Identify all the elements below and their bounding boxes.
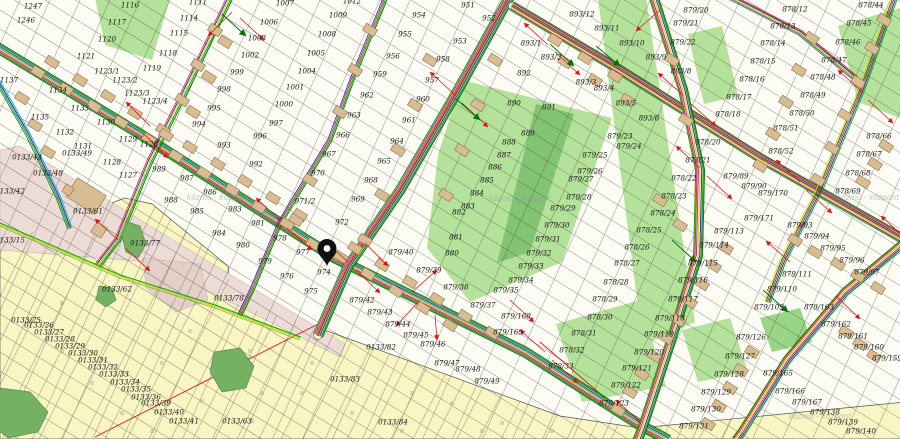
parcel-label: 879/34 (508, 276, 534, 285)
parcel-label: 879/122 (611, 381, 641, 390)
parcel-label: 0133/42 (0, 187, 25, 196)
parcel-label: 966 (336, 131, 350, 140)
parcel-label: 879/130 (691, 405, 721, 414)
parcel-label: 993 (217, 141, 231, 150)
parcel-label: 1012 (343, 0, 362, 6)
parcel-label: 956 (386, 52, 400, 61)
parcel-label: 878/66 (866, 132, 892, 141)
parcel-label: 960 (416, 95, 430, 104)
parcel-label: 879/46 (420, 340, 446, 349)
parcel-label: 878/52 (768, 147, 794, 156)
parcel-label: 0133/82 (366, 343, 396, 352)
parcel-label: 1123/1 (94, 67, 119, 76)
parcel-label: 879/160 (854, 343, 884, 352)
parcel-label: 878/14 (760, 39, 786, 48)
parcel-label: 879/40 (388, 248, 414, 257)
parcel-label: 0133/41 (169, 417, 199, 426)
parcel-label: 0133/62 (102, 285, 132, 294)
parcel-label: 1004 (298, 67, 317, 76)
parcel-label: 879/163 (804, 303, 834, 312)
parcel-label: 989 (152, 165, 166, 174)
parcel-label: 879/28 (566, 193, 592, 202)
parcel-label: 1135 (31, 113, 50, 122)
parcel-label: 983 (228, 205, 242, 214)
parcel-label: 879/94 (804, 232, 830, 241)
parcel-label: 879/131 (679, 422, 709, 431)
parcel-label: 878/46 (835, 38, 861, 47)
parcel-label: 1005 (307, 49, 326, 58)
parcel-label: 961 (402, 116, 416, 125)
parcel-label: 879/49 (474, 377, 500, 386)
parcel-label: 888 (502, 138, 516, 147)
parcel-label: 878/26 (624, 243, 650, 252)
parcel-label: 879/161 (838, 332, 868, 341)
parcel-label: 879/129 (701, 388, 731, 397)
parcel-label: 1114 (180, 14, 199, 23)
parcel-label: 879/140 (846, 427, 876, 436)
parcel-label: 879/118 (655, 314, 685, 323)
parcel-label: 1246 (17, 16, 36, 25)
parcel-label: 882 (452, 208, 466, 217)
parcel-label: 0133/63 (222, 417, 252, 426)
parcel-label: 974 (317, 268, 331, 277)
parcel-label: 878/21 (685, 156, 710, 165)
parcel-label: 1002 (241, 51, 260, 60)
parcel-label: 0133/61 (73, 207, 103, 216)
parcel-label: 879/35 (493, 286, 519, 295)
parcel-label: 879/24 (616, 142, 642, 151)
parcel-label: 996 (253, 132, 267, 141)
parcel-label: 1115 (170, 29, 189, 38)
parcel-label: 893/11 (594, 24, 619, 33)
parcel-label: 1134 (49, 86, 68, 95)
parcel-label: 879/170 (758, 189, 788, 198)
parcel-label: 879/30 (544, 221, 570, 230)
parcel-label: 1006 (260, 18, 279, 27)
parcel-label: 0133/39 (141, 399, 171, 408)
parcel-label: 879/93 (787, 221, 813, 230)
parcel-label: 878/24 (650, 209, 676, 218)
parcel-label: 1000 (275, 100, 294, 109)
parcel-label: 959 (373, 70, 387, 79)
parcel-label: 878/27 (614, 259, 640, 268)
parcel-label: 878/51 (773, 124, 798, 133)
parcel-label: 878/33 (548, 362, 574, 371)
parcel-label: 893/9 (646, 53, 667, 62)
parcel-label: 893/4 (594, 84, 615, 93)
parcel-label: 1121 (77, 52, 95, 61)
parcel-label: 879/43 (367, 308, 393, 317)
parcel-label: 879/109 (754, 303, 784, 312)
parcel-label: 879/123 (599, 399, 629, 408)
parcel-label: 0133/77 (130, 239, 160, 248)
parcel-label: 878/45 (846, 19, 872, 28)
watermark-text: közmű - központ (789, 412, 852, 421)
parcel-label: 879/96 (839, 256, 865, 265)
parcel-label: 878/31 (571, 329, 596, 338)
map-svg-host: 1247124611161117112011211111111411151118… (0, 0, 900, 439)
parcel-label: 972 (335, 218, 349, 227)
parcel-label: 879/31 (535, 235, 560, 244)
parcel-label: 1127 (119, 171, 138, 180)
parcel-label: 1111 (189, 0, 207, 7)
parcel-label: 878/50 (789, 109, 815, 118)
parcel-label: 879/39 (416, 266, 442, 275)
parcel-label: 879/168 (501, 312, 531, 321)
parcel-label: 1119 (143, 64, 162, 73)
parcel-label: 958 (436, 55, 450, 64)
parcel-label: 951 (461, 1, 475, 10)
parcel-label: 879/23 (607, 132, 633, 141)
parcel-label: 879/38 (443, 283, 469, 292)
parcel-label: 879/116 (678, 276, 708, 285)
parcel-label: 0133/49 (62, 149, 92, 158)
parcel-label: 879/159 (872, 354, 900, 363)
parcel-label: 1247 (24, 2, 43, 11)
parcel-label: 879/119 (644, 330, 674, 339)
parcel-label: 1118 (159, 49, 178, 58)
cadastral-map[interactable]: 1247124611161117112011211111111411151118… (0, 0, 900, 439)
parcel-label: 878/29 (592, 295, 618, 304)
parcel-label: 1129 (119, 135, 138, 144)
parcel-label: 878/28 (603, 278, 629, 287)
parcel-label: 1116 (121, 1, 140, 10)
parcel-label: 879/21 (673, 19, 698, 28)
parcel-label: 1008 (318, 30, 337, 39)
parcel-label: 879/167 (792, 398, 822, 407)
parcel-label: 0133/84 (378, 418, 408, 427)
parcel-label: 885 (480, 176, 494, 185)
parcel-label: 963 (347, 111, 361, 120)
parcel-label: 970 (311, 169, 325, 178)
parcel-label: 878/44 (858, 1, 884, 10)
parcel-label: 891 (542, 103, 556, 112)
parcel-label: 981 (251, 219, 265, 228)
parcel-label: 879/121 (622, 364, 652, 373)
parcel-label: 1120 (98, 35, 117, 44)
parcel-label: 1126 (140, 140, 159, 149)
parcel-label: 988 (164, 196, 178, 205)
parcel-label: 1133 (71, 104, 90, 113)
parcel-label: 995 (207, 104, 221, 113)
parcel-label: 0133/48 (33, 169, 63, 178)
parcel-label: 879/20 (683, 6, 709, 15)
parcel-label: 952 (482, 14, 496, 23)
parcel-label: 999 (230, 68, 244, 77)
parcel-label: 892 (517, 69, 531, 78)
parcel-label: 878/25 (636, 226, 662, 235)
parcel-label: 979 (258, 257, 272, 266)
map-canvas[interactable]: 1247124611161117112011211111111411151118… (0, 0, 900, 439)
parcel-label: 878/30 (587, 313, 613, 322)
parcel-label: 1132 (56, 128, 75, 137)
parcel-label: 879/110 (767, 285, 797, 294)
watermark-text: közmű - központ (489, 194, 552, 203)
parcel-label: 968 (364, 176, 378, 185)
parcel-label: 879/115 (688, 259, 718, 268)
parcel-label: 976 (280, 272, 294, 281)
watermark-text: közmű - központ (187, 193, 250, 202)
parcel-label: 887 (497, 151, 511, 160)
parcel-label: 879/44 (385, 320, 411, 329)
parcel-label: 893/10 (619, 39, 645, 48)
parcel-label: 969 (351, 195, 365, 204)
parcel-label: 879/120 (634, 348, 664, 357)
parcel-label: 889 (521, 129, 535, 138)
parcel-label: 987 (180, 174, 194, 183)
parcel-label: 890 (507, 99, 521, 108)
parcel-label: 881 (449, 233, 463, 242)
parcel-label: 0133/40 (154, 408, 184, 417)
parcel-label: 992 (249, 160, 263, 169)
parcel-label: 884 (470, 189, 484, 198)
parcel-label: 998 (217, 85, 231, 94)
parcel-label: 0133/83 (330, 375, 360, 384)
parcel-label: 879/27 (568, 175, 594, 184)
parcel-label: 878/49 (800, 91, 826, 100)
parcel-label: 879/166 (775, 387, 805, 396)
parcel-label: 879/117 (668, 295, 698, 304)
parcel-label: 1007 (276, 0, 295, 8)
parcel-label: 1123/4 (142, 97, 168, 106)
parcel-label: 1001 (286, 83, 304, 92)
parcel-label: 879/95 (820, 244, 846, 253)
parcel-label: 893/2 (541, 53, 562, 62)
parcel-label: 878/22 (671, 174, 697, 183)
parcel-label: 975 (304, 287, 318, 296)
parcel-label: 879/48 (455, 365, 481, 374)
parcel-label: 878/23 (661, 192, 687, 201)
parcel-label: 980 (236, 241, 250, 250)
parcel-label: 878/32 (559, 346, 585, 355)
parcel-label: 879/169 (493, 328, 523, 337)
parcel-label: 879/126 (736, 333, 766, 342)
parcel-label: 967 (322, 150, 336, 159)
parcel-label: 879/89 (723, 172, 749, 181)
parcel-label: 965 (377, 157, 391, 166)
parcel-label: 1128 (103, 158, 122, 167)
parcel-label: 964 (390, 137, 404, 146)
parcel-label: 878/15 (750, 57, 776, 66)
parcel-label: 1123/2 (112, 76, 138, 85)
parcel-label: 878/20 (695, 138, 721, 147)
parcel-label: 879/111 (782, 270, 812, 279)
parcel-label: 879/128 (714, 370, 744, 379)
parcel-label: 957 (425, 76, 439, 85)
parcel-label: 994 (192, 120, 206, 129)
parcel-label: 879/114 (699, 241, 729, 250)
parcel-label: 977 (296, 248, 310, 257)
parcel-label: 893/1 (521, 39, 542, 48)
watermark-text: közmű - központ (837, 193, 900, 202)
parcel-label: 879/97 (854, 268, 880, 277)
parcel-label: 878/17 (726, 93, 752, 102)
parcel-label: 879/32 (526, 249, 552, 258)
parcel-label: 878/67 (856, 150, 882, 159)
parcel-label: 879/33 (518, 262, 544, 271)
parcel-label: 879/25 (582, 151, 608, 160)
parcel-label: 878/16 (739, 75, 765, 84)
parcel-label: 879/22 (670, 38, 696, 47)
parcel-label: 879/29 (550, 204, 576, 213)
parcel-label: 953 (453, 37, 467, 46)
parcel-label: 997 (269, 119, 283, 128)
parcel-label: 1117 (108, 18, 127, 27)
parcel-label: 893/12 (569, 10, 595, 19)
parcel-label: 0133/43 (12, 153, 42, 162)
parcel-label: 1137 (0, 76, 19, 85)
parcel-label: 879/45 (403, 331, 429, 340)
parcel-label: 878/68 (845, 169, 871, 178)
parcel-label: 954 (412, 11, 426, 20)
parcel-label: 886 (488, 163, 502, 172)
parcel-label: 879/113 (714, 227, 744, 236)
parcel-label: 893/8 (671, 67, 692, 76)
parcel-label: 1130 (97, 118, 116, 127)
parcel-label: 984 (212, 229, 226, 238)
parcel-label: 880 (445, 249, 459, 258)
parcel-label: 0133/15 (0, 236, 25, 245)
parcel-label: 879/127 (725, 352, 755, 361)
parcel-label: 878/47 (821, 56, 847, 65)
parcel-label: 878/18 (715, 110, 741, 119)
parcel-label: 879/171 (744, 214, 774, 223)
parcel-label: 985 (190, 207, 204, 216)
parcel-label: 879/42 (349, 296, 375, 305)
parcel-label: 879/165 (763, 369, 793, 378)
parcel-label: 893/5 (616, 99, 637, 108)
parcel-label: 978 (273, 234, 287, 243)
parcel-label: 971/2 (295, 197, 316, 206)
parcel-label: 878/48 (810, 73, 836, 82)
parcel-label: 879/162 (821, 320, 851, 329)
parcel-label: 893/6 (639, 114, 660, 123)
parcel-label: 962 (360, 91, 374, 100)
parcel-label: 878/13 (770, 22, 796, 31)
parcel-label: 878/12 (782, 5, 808, 14)
parcel-label: 0133/78 (214, 294, 244, 303)
parcel-label: 1009 (329, 11, 348, 20)
parcel-label: 1003 (248, 34, 267, 43)
parcel-label: 955 (398, 30, 412, 39)
parcel-label: 879/37 (470, 301, 496, 310)
